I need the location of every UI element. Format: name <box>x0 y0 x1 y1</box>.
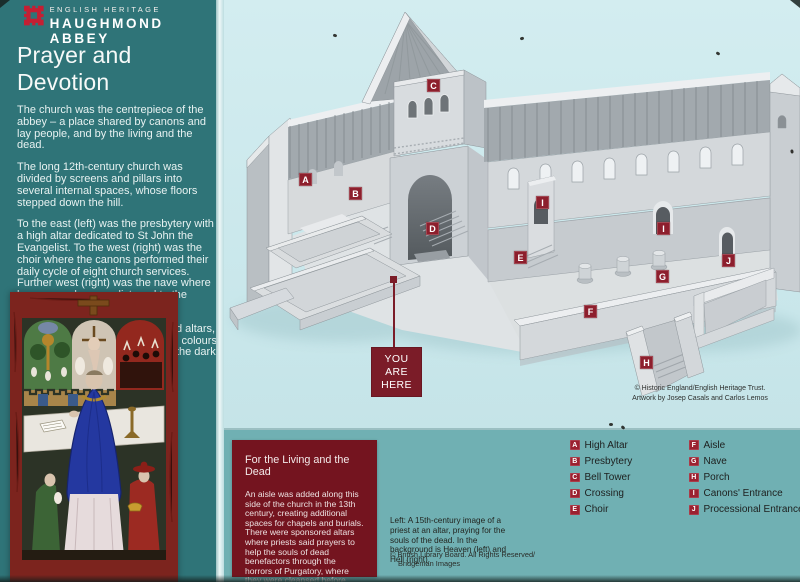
map-label-canons-entrance-2: I <box>657 222 670 235</box>
legend-label: Processional Entrance <box>704 504 800 515</box>
map-label-crossing: D <box>426 222 439 235</box>
info-box-title: For the Living and the Dead <box>245 454 365 478</box>
painting-credit: © British Library Board. All Rights Rese… <box>390 550 540 568</box>
map-label-aisle: F <box>584 305 597 318</box>
legend-label: Porch <box>704 472 730 483</box>
legend-label: Bell Tower <box>585 472 631 483</box>
legend-letter: D <box>570 489 580 499</box>
info-box-body: An aisle was added along this side of th… <box>245 490 365 582</box>
diagram-credit-line1: © Historic England/English Heritage Trus… <box>610 384 790 394</box>
legend-letter: J <box>689 505 699 515</box>
map-label-processional-entrance: J <box>722 254 735 267</box>
legend-letter: F <box>689 440 699 450</box>
legend-item-presbytery: BPresbytery <box>570 453 632 469</box>
church-cutaway-illustration <box>222 0 800 430</box>
you-are-here-marker <box>390 276 397 283</box>
brand-eyebrow: ENGLISH HERITAGE <box>50 5 218 14</box>
legend-letter: H <box>689 473 699 483</box>
map-label-choir: E <box>514 251 527 264</box>
english-heritage-logo-icon <box>24 4 44 27</box>
interpretation-sign: A B C D I E I G J F H YOU ARE HERE © His… <box>0 0 800 582</box>
diagram-credit: © Historic England/English Heritage Trus… <box>610 384 790 403</box>
legend-item-choir: EChoir <box>570 502 632 518</box>
legend-item-aisle: FAisle <box>689 437 800 453</box>
map-label-nave: G <box>656 270 669 283</box>
panel-paragraph-2: The long 12th-century church was divided… <box>17 162 218 209</box>
legend-letter: C <box>570 473 580 483</box>
map-label-high-altar: A <box>299 173 312 186</box>
legend-item-nave: GNave <box>689 453 800 469</box>
canons-entrance-spur <box>528 176 556 258</box>
photo-bottom-edge <box>0 575 800 582</box>
fly-speck <box>609 423 613 426</box>
legend-item-high-altar: AHigh Altar <box>570 437 632 453</box>
legend-letter: B <box>570 457 580 467</box>
legend-column-1: AHigh Altar BPresbytery CBell Tower DCro… <box>570 437 632 518</box>
legend-label: Crossing <box>585 488 624 499</box>
legend-letter: I <box>689 489 699 499</box>
legend-label: Presbytery <box>585 456 633 467</box>
legend-label: Nave <box>704 456 727 467</box>
sign-panel-joint <box>216 0 224 582</box>
legend-letter: G <box>689 457 699 467</box>
legend-item-porch: HPorch <box>689 469 800 485</box>
diagram-credit-line2: Artwork by Josep Casals and Carlos Lemos <box>610 394 790 404</box>
west-gable <box>770 74 800 292</box>
legend-letter: E <box>570 505 580 515</box>
legend-label: High Altar <box>585 440 628 451</box>
legend-item-bell-tower: CBell Tower <box>570 469 632 485</box>
manuscript-painting-image <box>10 292 178 582</box>
legend-label: Choir <box>585 504 609 515</box>
you-are-here-leader-line <box>393 283 395 347</box>
legend-column-2: FAisle GNave HPorch ICanons' Entrance JP… <box>689 437 800 518</box>
page-title: Prayer and Devotion <box>17 42 218 96</box>
map-label-presbytery: B <box>349 187 362 200</box>
legend-label: Aisle <box>704 440 726 451</box>
map-label-bell-tower: C <box>427 79 440 92</box>
legend-item-crossing: DCrossing <box>570 486 632 502</box>
map-label-porch: H <box>640 356 653 369</box>
brand-header: ENGLISH HERITAGE HAUGHMOND ABBEY <box>24 2 218 46</box>
legend-label: Canons' Entrance <box>704 488 783 499</box>
info-box: For the Living and the Dead An aisle was… <box>232 440 377 577</box>
you-are-here-box: YOU ARE HERE <box>371 347 422 397</box>
panel-paragraph-1: The church was the centrepiece of the ab… <box>17 105 218 152</box>
map-label-canons-entrance-1: I <box>536 196 549 209</box>
painting-credit-line1: © British Library Board. All Rights Rese… <box>390 550 540 559</box>
legend-letter: A <box>570 440 580 450</box>
legend-item-canons-entrance: ICanons' Entrance <box>689 486 800 502</box>
church-diagram-area: A B C D I E I G J F H YOU ARE HERE © His… <box>222 0 800 430</box>
painting-credit-line2: Bridgeman Images <box>398 559 540 568</box>
legend-item-processional-entrance: JProcessional Entrance <box>689 502 800 518</box>
